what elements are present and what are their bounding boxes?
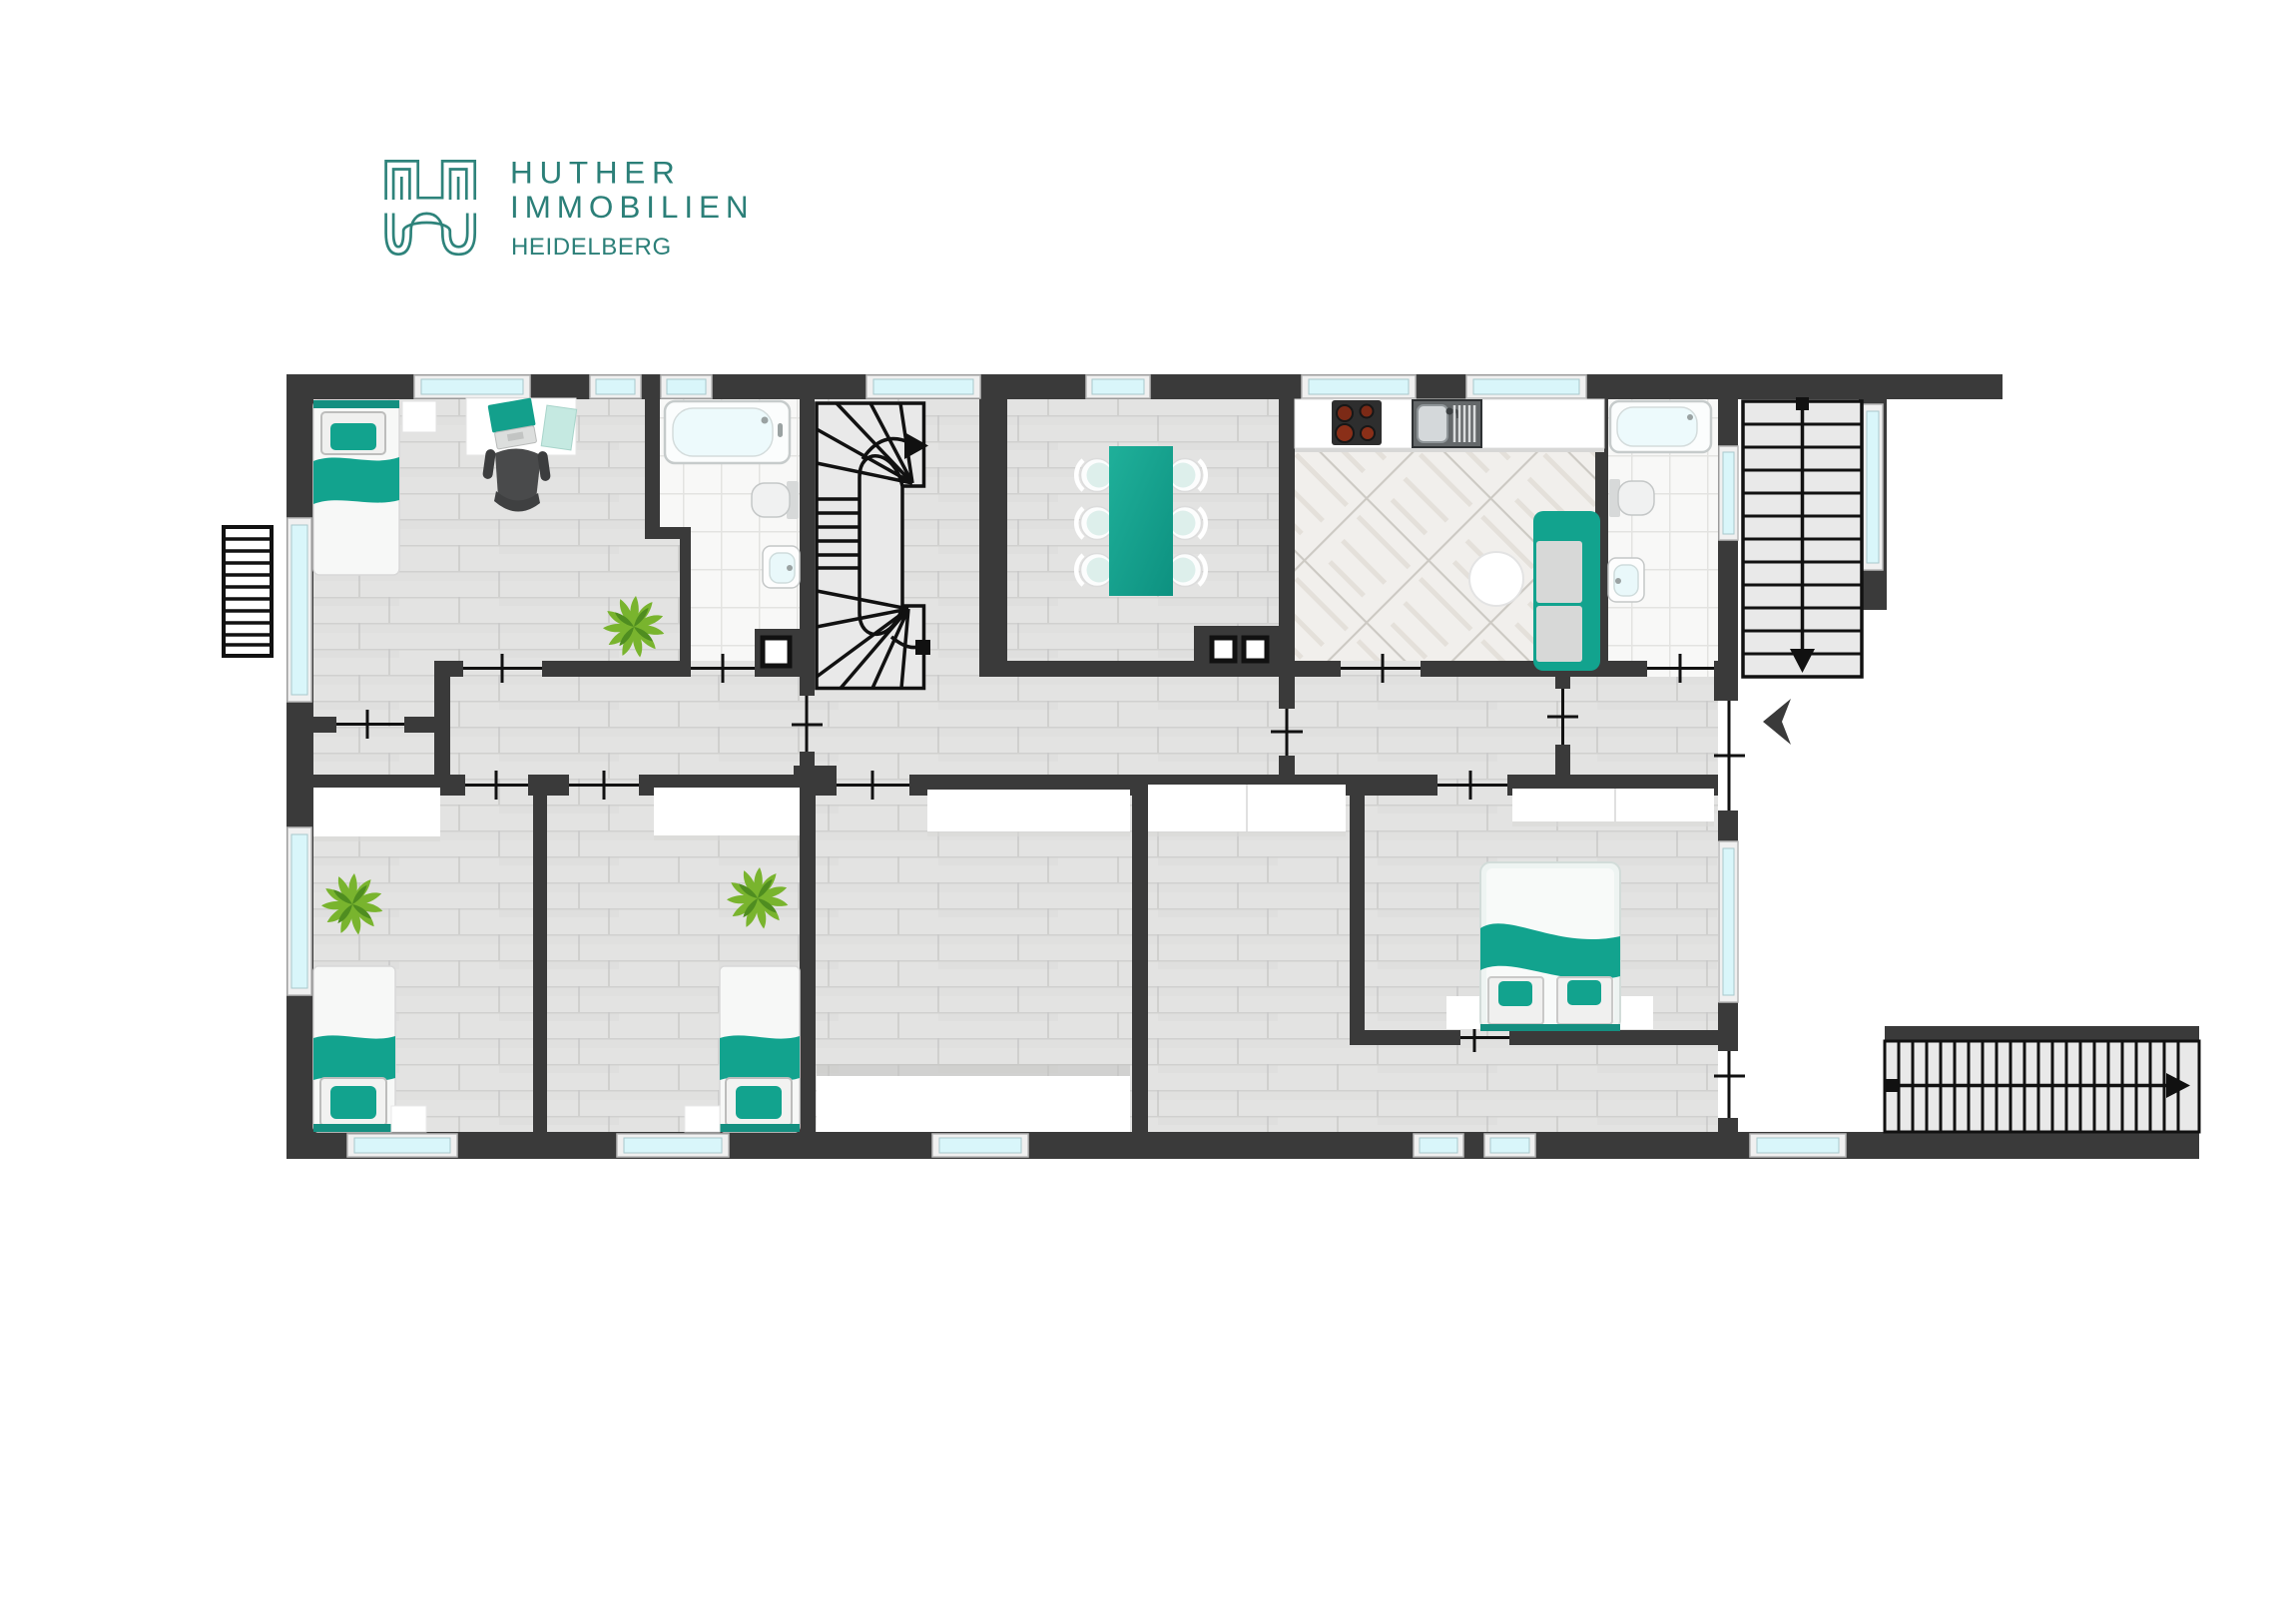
svg-text:HUTHER: HUTHER bbox=[510, 155, 681, 191]
svg-text:HEIDELBERG: HEIDELBERG bbox=[511, 234, 672, 261]
svg-text:IMMOBILIEN: IMMOBILIEN bbox=[510, 189, 755, 225]
